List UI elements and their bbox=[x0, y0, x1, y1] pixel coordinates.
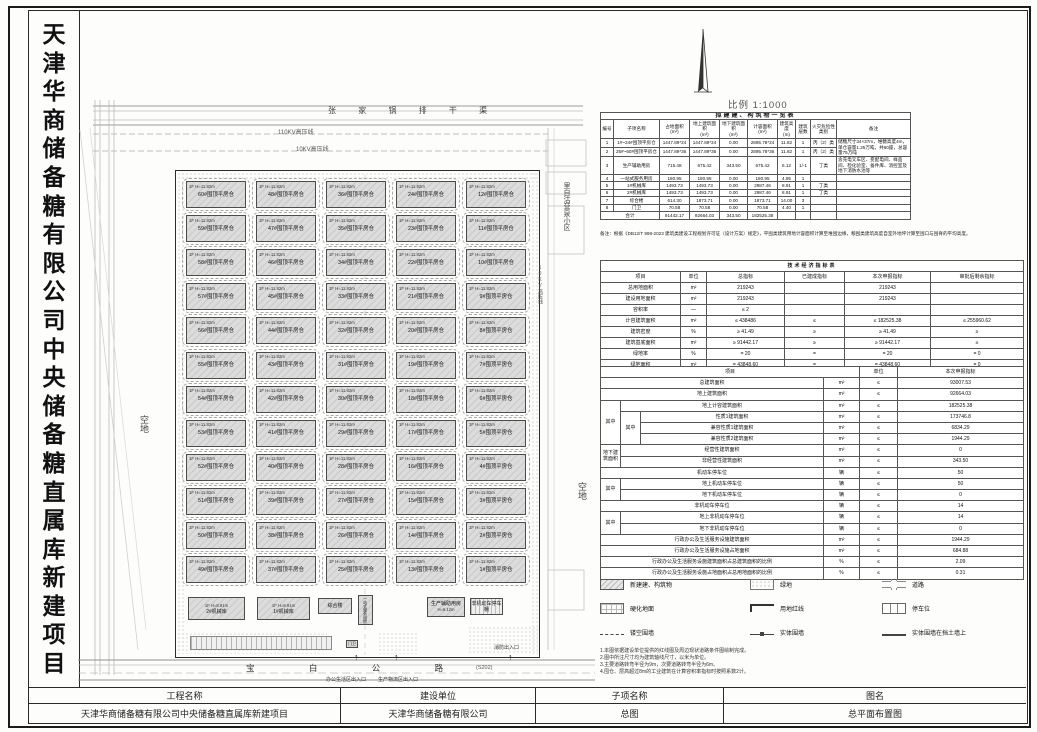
warehouse-name-label: 20#囤顶平房仓 bbox=[397, 328, 455, 334]
warehouse-name-label: 19#囤顶平房仓 bbox=[397, 362, 455, 368]
table-cell: ≤ bbox=[860, 546, 898, 557]
warehouse-name-label: 44#囤顶平房仓 bbox=[257, 328, 315, 334]
building-prod-aux: 生产辅助用房 H=6.12m bbox=[427, 597, 465, 617]
warehouse-floor-label: 1F H=11.82m bbox=[257, 489, 315, 496]
table-cell: ≤ 438486 bbox=[707, 316, 785, 327]
warehouse-floor-label: 1F H=11.82m bbox=[187, 318, 245, 325]
table-cell: 生产辅助用房 bbox=[614, 156, 660, 174]
legend-label: 新建建、构筑物 bbox=[630, 580, 672, 589]
warehouse-floor-label: 1F H=11.82m bbox=[187, 250, 245, 257]
warehouse-block-54: 1F H=11.82m54#囤顶平房仓 bbox=[186, 386, 246, 413]
warehouse-floor-label: 1F H=11.82m bbox=[467, 455, 525, 462]
column-header: 本次申报指标 bbox=[845, 272, 931, 283]
table-cell: 1447.89*24 bbox=[660, 138, 690, 147]
warehouse-name-label: 28#囤顶平房仓 bbox=[327, 464, 385, 470]
table-cell: 0 bbox=[898, 490, 1024, 501]
table-cell: ≤ 255960.62 bbox=[931, 316, 1024, 327]
table-cell: 2.09 bbox=[898, 557, 1024, 568]
entrance-office-label: 办公生活区出入口 bbox=[326, 676, 366, 683]
table-cell: 计容建筑面积 bbox=[601, 316, 681, 327]
warehouse-name-label: 14#囤顶平房仓 bbox=[397, 533, 455, 539]
warehouse-floor-label: 1F H=11.82m bbox=[187, 182, 245, 189]
warehouse-block-14: 1F H=11.82m14#囤顶平房仓 bbox=[396, 522, 456, 549]
table-cell: 经营性建筑面积 bbox=[621, 445, 824, 456]
table-cell: 丙（2）类 bbox=[811, 147, 837, 156]
warehouse-block-1: 1F H=11.82m1#囤顶平房仓 bbox=[466, 556, 526, 583]
title-block-project-name: 天津华商储备糖有限公司中央储备糖直属库新建项目 bbox=[29, 704, 341, 723]
warehouse-floor-label: 1F H=11.82m bbox=[397, 318, 455, 325]
title-block: 工程名称 建设单位 子项名称 图名 天津华商储备糖有限公司中央储备糖直属库新建项… bbox=[29, 687, 1026, 723]
table-row: 绿地率%= 20== 20= 0 bbox=[601, 349, 1024, 360]
warehouse-block-10: 1F H=11.82m10#囤顶平房仓 bbox=[466, 249, 526, 276]
warehouse-block-9: 1F H=11.82m9#囤顶平房仓 bbox=[466, 283, 526, 310]
warehouse-floor-label: 1F H=11.82m bbox=[187, 421, 245, 428]
warehouse-block-55: 1F H=11.82m55#囤顶平房仓 bbox=[186, 352, 246, 379]
table-cell: 11.82 bbox=[778, 138, 796, 147]
warehouse-name-label: 51#囤顶平房仓 bbox=[187, 498, 245, 504]
warehouse-name-label: 23#囤顶平房仓 bbox=[397, 226, 455, 232]
table-cell bbox=[811, 204, 837, 211]
warehouse-block-49: 1F H=11.82m49#囤顶平房仓 bbox=[186, 556, 246, 583]
warehouse-block-43: 1F H=11.82m43#囤顶平房仓 bbox=[256, 352, 316, 379]
warehouse-name-label: 48#囤顶平房仓 bbox=[257, 192, 315, 198]
warehouse-floor-label: 1F H=11.82m bbox=[327, 250, 385, 257]
warehouse-name-label: 2#囤顶平房仓 bbox=[467, 533, 525, 539]
column-header: 编号 bbox=[601, 120, 614, 138]
table-cell: m² bbox=[824, 456, 860, 467]
warehouse-block-24: 1F H=11.82m24#囤顶平房仓 bbox=[396, 181, 456, 208]
project-title-vertical: 天津华商储备糖有限公司中央储备糖直属库新建项目 bbox=[42, 20, 66, 687]
legend-item: 硬化地面 bbox=[600, 596, 750, 620]
table-cell: 92664.03 bbox=[690, 212, 720, 219]
table-cell: 总用地面积 bbox=[601, 283, 681, 294]
warehouse-floor-label: 1F H=11.82m bbox=[257, 216, 315, 223]
declared-indicator-table: 项目单位本次申报指标总建筑面积m²≤93007.53地上建筑面积m²≤92664… bbox=[600, 366, 1024, 580]
table-cell: 0.00 bbox=[720, 147, 748, 156]
table-cell: 其中 bbox=[601, 400, 621, 445]
building-machine-1: 1F H=8.91m 1#机械库 bbox=[257, 597, 310, 620]
warehouse-block-3: 1F H=11.82m3#囤顶平房仓 bbox=[466, 488, 526, 515]
table-row: 行政办公及生活服务设施占地面积m²≤684.88 bbox=[601, 546, 1024, 557]
warehouse-name-label: 36#囤顶平房仓 bbox=[327, 192, 385, 198]
warehouse-block-34: 1F H=11.82m34#囤顶平房仓 bbox=[326, 249, 386, 276]
entrance-arrow-fire: ↑ bbox=[508, 652, 513, 662]
warehouse-floor-label: 1F H=11.82m bbox=[257, 421, 315, 428]
table-row: 8门卫70.5870.580.0070.584.401 bbox=[601, 204, 911, 211]
warehouse-block-53: 1F H=11.82m53#囤顶平房仓 bbox=[186, 420, 246, 447]
warehouse-floor-label: 1F H=11.82m bbox=[397, 387, 455, 394]
table-cell: 1 bbox=[796, 175, 811, 182]
table-cell: 1493.73 bbox=[690, 189, 720, 196]
technical-indicator-table: 技术经济指标表项目单位总指标已建成指标本次申报指标审批后剩余指标总用地面积m²2… bbox=[600, 260, 1024, 371]
warehouse-name-label: 13#囤顶平房仓 bbox=[397, 567, 455, 573]
warehouse-block-46: 1F H=11.82m46#囤顶平房仓 bbox=[256, 249, 316, 276]
table-cell: ≤ bbox=[860, 378, 898, 389]
table-cell: ≤ bbox=[860, 467, 898, 478]
table-cell: 其中 bbox=[601, 512, 621, 534]
warehouse-name-label: 38#囤顶平房仓 bbox=[257, 533, 315, 539]
table-cell: 其中 bbox=[621, 411, 641, 445]
legend-fence-swatch bbox=[600, 634, 624, 635]
table-row: 合计91442.1792664.03343.50182525.38 bbox=[601, 212, 911, 219]
warehouse-floor-label: 1F H=11.82m bbox=[257, 182, 315, 189]
warehouse-name-label: 12#囤顶平房仓 bbox=[467, 192, 525, 198]
column-header: 计容面积 (m²) bbox=[748, 120, 778, 138]
warehouse-block-48: 1F H=11.82m48#囤顶平房仓 bbox=[256, 181, 316, 208]
table-cell: 1493.73 bbox=[660, 182, 690, 189]
table-row: 3生产辅助用房715.48675.42343.50675.426.121/-1丁… bbox=[601, 156, 911, 174]
warehouse-floor-label: 1F H=11.82m bbox=[327, 455, 385, 462]
warehouse-floor-label: 1F H=11.82m bbox=[397, 216, 455, 223]
warehouse-floor-label: 1F H=11.82m bbox=[257, 353, 315, 360]
warehouse-name-label: 57#囤顶平房仓 bbox=[187, 294, 245, 300]
table-cell: ≤ bbox=[860, 400, 898, 411]
warehouse-floor-label: 1F H=11.82m bbox=[327, 353, 385, 360]
warehouse-block-25: 1F H=11.82m25#囤顶平房仓 bbox=[326, 556, 386, 583]
warehouse-block-38: 1F H=11.82m38#囤顶平房仓 bbox=[256, 522, 316, 549]
table-cell: ≤ bbox=[860, 411, 898, 422]
warehouse-block-30: 1F H=11.82m30#囤顶平房仓 bbox=[326, 386, 386, 413]
table-cell: 行政办公及生活服务设施占地面积 bbox=[601, 546, 824, 557]
warehouse-name-label: 25#囤顶平房仓 bbox=[327, 567, 385, 573]
warehouse-floor-label: 1F H=11.82m bbox=[327, 421, 385, 428]
warehouse-block-41: 1F H=11.82m41#囤顶平房仓 bbox=[256, 420, 316, 447]
table-row: 62#机械库1493.731493.730.002987.468.911丁类 bbox=[601, 189, 911, 196]
table-cell: m² bbox=[824, 422, 860, 433]
column-header: 项目 bbox=[601, 367, 860, 378]
warehouse-floor-label: 1F H=11.82m bbox=[467, 557, 525, 564]
table-row: 机动车停车位辆≤50 bbox=[601, 467, 1024, 478]
table-row: 行政办公及生活服务设施建筑面积m²≤1944.29 bbox=[601, 534, 1024, 545]
table-cell: 182525.38 bbox=[748, 212, 778, 219]
legend-dots-swatch bbox=[750, 579, 774, 590]
warehouse-floor-label: 1F H=11.82m bbox=[467, 387, 525, 394]
table-cell: = 0 bbox=[931, 349, 1024, 360]
column-header: 本次申报指标 bbox=[898, 367, 1024, 378]
warehouse-name-label: 60#囤顶平房仓 bbox=[187, 192, 245, 198]
warehouse-block-40: 1F H=11.82m40#囤顶平房仓 bbox=[256, 454, 316, 481]
table-row: 地下非机动车停车位辆≤0 bbox=[601, 523, 1024, 534]
table-row: 建筑基底面积m²≥ 91442.17≥≥ 91442.17≥ bbox=[601, 338, 1024, 349]
table-cell: m² bbox=[824, 400, 860, 411]
drawing-notes: 1.本图依据建设单位提供的红线图及周边现状道路条件图绘制完成。2.图中所注尺寸均… bbox=[600, 648, 1024, 676]
road-name-label: 宝 白 公 路 bbox=[246, 662, 469, 674]
table-cell: 0.00 bbox=[720, 175, 748, 182]
warehouse-name-label: 5#囤顶平房仓 bbox=[467, 430, 525, 436]
title-block-drawing-name: 总平面布置图 bbox=[724, 704, 1026, 723]
table-cell: ≥ 41.49 bbox=[707, 327, 785, 338]
table-cell: 行政办公及生活服务设施建筑面积 bbox=[601, 534, 824, 545]
table-cell: 14 bbox=[898, 501, 1024, 512]
warehouse-floor-label: 1F H=11.82m bbox=[467, 216, 525, 223]
table-cell: ≤ bbox=[860, 501, 898, 512]
table-cell: 非经营性建筑面积 bbox=[621, 456, 824, 467]
warehouse-floor-label: 1F H=11.82m bbox=[257, 455, 315, 462]
table-cell: = 20 bbox=[845, 349, 931, 360]
table-cell: 8.91 bbox=[778, 189, 796, 196]
warehouse-floor-label: 1F H=11.82m bbox=[467, 182, 525, 189]
table-row: 地上建筑面积m²≤92664.03 bbox=[601, 389, 1024, 400]
entrance-arrow-logistics: ↑ bbox=[394, 652, 399, 662]
table-cell: 2895.78*36 bbox=[748, 147, 778, 156]
warehouse-block-27: 1F H=11.82m27#囤顶平房仓 bbox=[326, 488, 386, 515]
table-row: 51#机械库1493.731493.730.002987.468.911丁类 bbox=[601, 182, 911, 189]
table-cell: m² bbox=[681, 294, 707, 305]
warehouse-block-2: 1F H=11.82m2#囤顶平房仓 bbox=[466, 522, 526, 549]
table-cell: 1#~24#囤顶平房仓 bbox=[614, 138, 660, 147]
table-cell: 行政办公及生活服务设施建筑面积占总建筑面积的比例 bbox=[601, 557, 824, 568]
title-block-header-project: 工程名称 bbox=[29, 688, 341, 704]
warehouse-floor-label: 1F H=11.82m bbox=[467, 250, 525, 257]
table-cell: 总建筑面积 bbox=[601, 378, 824, 389]
warehouse-floor-label: 1F H=11.82m bbox=[257, 557, 315, 564]
column-header: 建筑高度 (m) bbox=[778, 120, 796, 138]
table-row: 4一站式服务用房180.95180.950.00180.954.951 bbox=[601, 175, 911, 182]
note-line: 3.主要道路转弯半径为9m，次要道路转弯半径为6m。 bbox=[600, 662, 1024, 669]
table-cell: m² bbox=[824, 389, 860, 400]
warehouse-floor-label: 1F H=11.82m bbox=[327, 182, 385, 189]
table-cell: 6834.29 bbox=[898, 422, 1024, 433]
legend-grid-swatch bbox=[600, 603, 624, 614]
table-cell: 1493.73 bbox=[690, 182, 720, 189]
table-cell: 容积率 bbox=[601, 305, 681, 316]
table-cell: = 20 bbox=[707, 349, 785, 360]
table-cell: 182525.38 bbox=[898, 400, 1024, 411]
warehouse-floor-label: 1F H=11.82m bbox=[467, 421, 525, 428]
table-cell: 14 bbox=[898, 512, 1024, 523]
warehouse-block-7: 1F H=11.82m7#囤顶平房仓 bbox=[466, 352, 526, 379]
warehouse-floor-label: 1F H=11.82m bbox=[327, 284, 385, 291]
title-block-owner-name: 天津华商储备糖有限公司 bbox=[341, 704, 536, 723]
drawing-sheet: 天津华商储备糖有限公司中央储备糖直属库新建项目 bbox=[0, 0, 1037, 732]
warehouse-block-37: 1F H=11.82m37#囤顶平房仓 bbox=[256, 556, 316, 583]
warehouse-name-label: 33#囤顶平房仓 bbox=[327, 294, 385, 300]
column-header: 已建成指标 bbox=[785, 272, 845, 283]
table-cell: 含充电叉车区、变配电间、样品间、检化验室、备件库、消控室及地下消防水池等 bbox=[837, 156, 911, 174]
table-cell: = bbox=[785, 349, 845, 360]
legend-label: 镂空围墙 bbox=[630, 628, 654, 637]
table-cell: 11.82 bbox=[778, 147, 796, 156]
warehouse-name-label: 35#囤顶平房仓 bbox=[327, 226, 385, 232]
warehouse-name-label: 52#囤顶平房仓 bbox=[187, 464, 245, 470]
column-header: 建筑层数 bbox=[796, 120, 811, 138]
column-header: 火灾危险性类别 bbox=[811, 120, 837, 138]
table-cell: 6 bbox=[601, 189, 614, 196]
table-cell: 其中 bbox=[601, 478, 621, 500]
north-arrow-icon bbox=[688, 26, 718, 98]
table-cell: 兼容性质1建筑面积 bbox=[641, 422, 824, 433]
warehouse-floor-label: 1F H=11.82m bbox=[397, 523, 455, 530]
table-cell: 2987.46 bbox=[748, 182, 778, 189]
warehouse-floor-label: 1F H=11.82m bbox=[327, 557, 385, 564]
note-line: 2.图中所注尺寸均为建筑轴线尺寸，以米为单位。 bbox=[600, 655, 1024, 662]
warehouse-block-33: 1F H=11.82m33#囤顶平房仓 bbox=[326, 283, 386, 310]
table-row: 其中地上计容建筑面积m²≤182525.38 bbox=[601, 400, 1024, 411]
table-cell: 2987.46 bbox=[748, 189, 778, 196]
table-cell: 91442.17 bbox=[660, 212, 690, 219]
warehouse-block-42: 1F H=11.82m42#囤顶平房仓 bbox=[256, 386, 316, 413]
warehouse-block-26: 1F H=11.82m26#囤顶平房仓 bbox=[326, 522, 386, 549]
table-cell: m² bbox=[681, 338, 707, 349]
table-cell: 0 bbox=[898, 445, 1024, 456]
table-cell: 辆 bbox=[824, 512, 860, 523]
table-cell: 180.95 bbox=[748, 175, 778, 182]
table-cell: 70.58 bbox=[660, 204, 690, 211]
site-plan: 1F H=11.82m60#囤顶平房仓1F H=11.82m48#囤顶平房仓1F… bbox=[78, 10, 595, 687]
table-row: 7综合楼614.301873.710.001873.7114.003 bbox=[601, 197, 911, 204]
table-cell: 机动车停车位 bbox=[601, 467, 824, 478]
warehouse-name-label: 6#囤顶平房仓 bbox=[467, 396, 525, 402]
table-cell: 70.58 bbox=[690, 204, 720, 211]
warehouse-floor-label: 1F H=11.82m bbox=[467, 489, 525, 496]
table-row: 总用地面积m²219243219243 bbox=[601, 283, 1024, 294]
building-table-note: 备注：根据《DB12/T 998-2023 建筑类建设工程规划许可证（设计方案）… bbox=[600, 231, 1024, 237]
warehouse-name-label: 17#囤顶平房仓 bbox=[397, 430, 455, 436]
table-cell: 219243 bbox=[845, 294, 931, 305]
table-cell: ≥ bbox=[785, 327, 845, 338]
table-cell: 1944.29 bbox=[898, 534, 1024, 545]
table-cell: ≤ 182525.38 bbox=[845, 316, 931, 327]
table-cell: 70.58 bbox=[748, 204, 778, 211]
table-cell: 1447.89*36 bbox=[660, 147, 690, 156]
warehouse-floor-label: 1F H=11.82m bbox=[397, 182, 455, 189]
warehouse-block-22: 1F H=11.82m22#囤顶平房仓 bbox=[396, 249, 456, 276]
table-cell bbox=[785, 294, 845, 305]
table-cell: 丁类 bbox=[811, 182, 837, 189]
table-cell: 343.50 bbox=[898, 456, 1024, 467]
warehouse-block-57: 1F H=11.82m57#囤顶平房仓 bbox=[186, 283, 246, 310]
note-line: 4.囤仓、层高超过8m的工业建筑在计算容积率指标时按照系数2计。 bbox=[600, 669, 1024, 676]
table-cell: 地上计容建筑面积 bbox=[621, 400, 824, 411]
table-cell: ≤ bbox=[860, 389, 898, 400]
warehouse-name-label: 26#囤顶平房仓 bbox=[327, 533, 385, 539]
warehouse-floor-label: 1F H=11.82m bbox=[467, 353, 525, 360]
table-cell: 50 bbox=[898, 467, 1024, 478]
open-land-right-label: 空地 bbox=[576, 482, 589, 500]
warehouse-block-35: 1F H=11.82m35#囤顶平房仓 bbox=[326, 215, 386, 242]
column-header: 备注 bbox=[837, 120, 911, 138]
building-sub-label: H=6.12m bbox=[437, 607, 454, 613]
warehouse-block-44: 1F H=11.82m44#囤顶平房仓 bbox=[256, 317, 316, 344]
table-cell: 675.42 bbox=[748, 156, 778, 174]
warehouse-floor-label: 1F H=11.82m bbox=[397, 557, 455, 564]
table-cell: 地下非机动车停车位 bbox=[621, 523, 824, 534]
table-cell: 25#~60#囤顶平房仓 bbox=[614, 147, 660, 156]
warehouse-floor-label: 1F H=11.82m bbox=[187, 387, 245, 394]
table-cell: 辆 bbox=[824, 490, 860, 501]
warehouse-name-label: 30#囤顶平房仓 bbox=[327, 396, 385, 402]
warehouse-name-label: 9#囤顶平房仓 bbox=[467, 294, 525, 300]
table-cell: ≤ bbox=[860, 456, 898, 467]
warehouse-floor-label: 1F H=11.82m bbox=[257, 284, 315, 291]
table-cell: 684.88 bbox=[898, 546, 1024, 557]
legend-label: 用地红线 bbox=[780, 604, 804, 613]
legend-item: 停车位 bbox=[882, 596, 1024, 620]
table-cell: ≤ bbox=[785, 316, 845, 327]
warehouse-block-45: 1F H=11.82m45#囤顶平房仓 bbox=[256, 283, 316, 310]
table-cell: m² bbox=[824, 534, 860, 545]
table-cell: ≥ bbox=[785, 338, 845, 349]
table-cell: 715.48 bbox=[660, 156, 690, 174]
warehouse-block-20: 1F H=11.82m20#囤顶平房仓 bbox=[396, 317, 456, 344]
table-row: 其中性质1建筑面积m²≤173746.8 bbox=[601, 411, 1024, 422]
table-cell: 1 bbox=[601, 138, 614, 147]
table-row: 行政办公及生活服务设施建筑面积占总建筑面积的比例%≤2.09 bbox=[601, 557, 1024, 568]
table-row: 建设用地面积m²219243219243 bbox=[601, 294, 1024, 305]
table-cell bbox=[845, 305, 931, 316]
table-row: 计容建筑面积m²≤ 438486≤≤ 182525.38≤ 255960.62 bbox=[601, 316, 1024, 327]
table-cell: 173746.8 bbox=[898, 411, 1024, 422]
table-cell: 4.95 bbox=[778, 175, 796, 182]
legend-item: 道路 bbox=[882, 572, 1024, 596]
table-cell: 绿地率 bbox=[601, 349, 681, 360]
warehouse-block-31: 1F H=11.82m31#囤顶平房仓 bbox=[326, 352, 386, 379]
warehouse-name-label: 11#囤顶平房仓 bbox=[467, 226, 525, 232]
warehouse-name-label: 59#囤顶平房仓 bbox=[187, 226, 245, 232]
table-cell bbox=[785, 283, 845, 294]
open-land-left-label: 空地 bbox=[138, 415, 151, 433]
warehouse-floor-label: 1F H=11.82m bbox=[397, 455, 455, 462]
table-cell: 343.50 bbox=[720, 212, 748, 219]
table-cell: 合计 bbox=[601, 212, 660, 219]
table-cell: 4.40 bbox=[778, 204, 796, 211]
entrance-fire-label: 消防出入口 bbox=[494, 644, 519, 651]
warehouse-floor-label: 1F H=11.82m bbox=[327, 387, 385, 394]
table-cell: 0.00 bbox=[720, 182, 748, 189]
table-row: 11#~24#囤顶平房仓1447.89*241447.89*240.002895… bbox=[601, 138, 911, 147]
table-cell: ≤ bbox=[860, 534, 898, 545]
warehouse-name-label: 22#囤顶平房仓 bbox=[397, 260, 455, 266]
warehouse-name-label: 43#囤顶平房仓 bbox=[257, 362, 315, 368]
green-strip-right bbox=[531, 172, 538, 654]
legend-label: 绿地 bbox=[780, 580, 792, 589]
warehouse-name-label: 42#囤顶平房仓 bbox=[257, 396, 315, 402]
legend-item: 实体围墙 bbox=[750, 620, 882, 644]
table-cell: ≤ 2 bbox=[707, 305, 785, 316]
table-cell bbox=[837, 197, 911, 204]
column-header: 地上建筑面积 (m²) bbox=[690, 120, 720, 138]
warehouse-name-label: 32#囤顶平房仓 bbox=[327, 328, 385, 334]
table-cell: 地上机动车停车位 bbox=[621, 478, 824, 489]
table-cell: m² bbox=[824, 411, 860, 422]
warehouse-floor-label: 1F H=11.82m bbox=[327, 523, 385, 530]
warehouse-name-label: 41#囤顶平房仓 bbox=[257, 430, 315, 436]
warehouse-floor-label: 1F H=11.82m bbox=[257, 250, 315, 257]
column-header: 单位 bbox=[860, 367, 898, 378]
legend-label: 实体围墙在挡土墙上 bbox=[912, 628, 966, 637]
legend-label: 停车位 bbox=[912, 604, 930, 613]
table-cell: 地下机动车停车位 bbox=[621, 490, 824, 501]
table-cell: 4 bbox=[601, 175, 614, 182]
table-row: 地下机动车停车位辆≤0 bbox=[601, 490, 1024, 501]
table-cell bbox=[837, 204, 911, 211]
table-cell: 2#机械库 bbox=[614, 189, 660, 196]
table-cell bbox=[785, 305, 845, 316]
building-label: 门卫 bbox=[348, 641, 356, 647]
table-cell: 14.00 bbox=[778, 197, 796, 204]
warehouse-block-18: 1F H=11.82m18#囤顶平房仓 bbox=[396, 386, 456, 413]
table-cell: ≤ bbox=[860, 490, 898, 501]
warehouse-block-19: 1F H=11.82m19#囤顶平房仓 bbox=[396, 352, 456, 379]
warehouse-name-label: 8#囤顶平房仓 bbox=[467, 328, 525, 334]
table-cell: 0.00 bbox=[720, 138, 748, 147]
table-cell: 3 bbox=[796, 197, 811, 204]
table-cell: 1493.73 bbox=[660, 189, 690, 196]
warehouse-block-17: 1F H=11.82m17#囤顶平房仓 bbox=[396, 420, 456, 447]
warehouse-block-6: 1F H=11.82m6#囤顶平房仓 bbox=[466, 386, 526, 413]
table-cell: 5 bbox=[601, 182, 614, 189]
title-block-header-subitem: 子项名称 bbox=[536, 688, 724, 704]
